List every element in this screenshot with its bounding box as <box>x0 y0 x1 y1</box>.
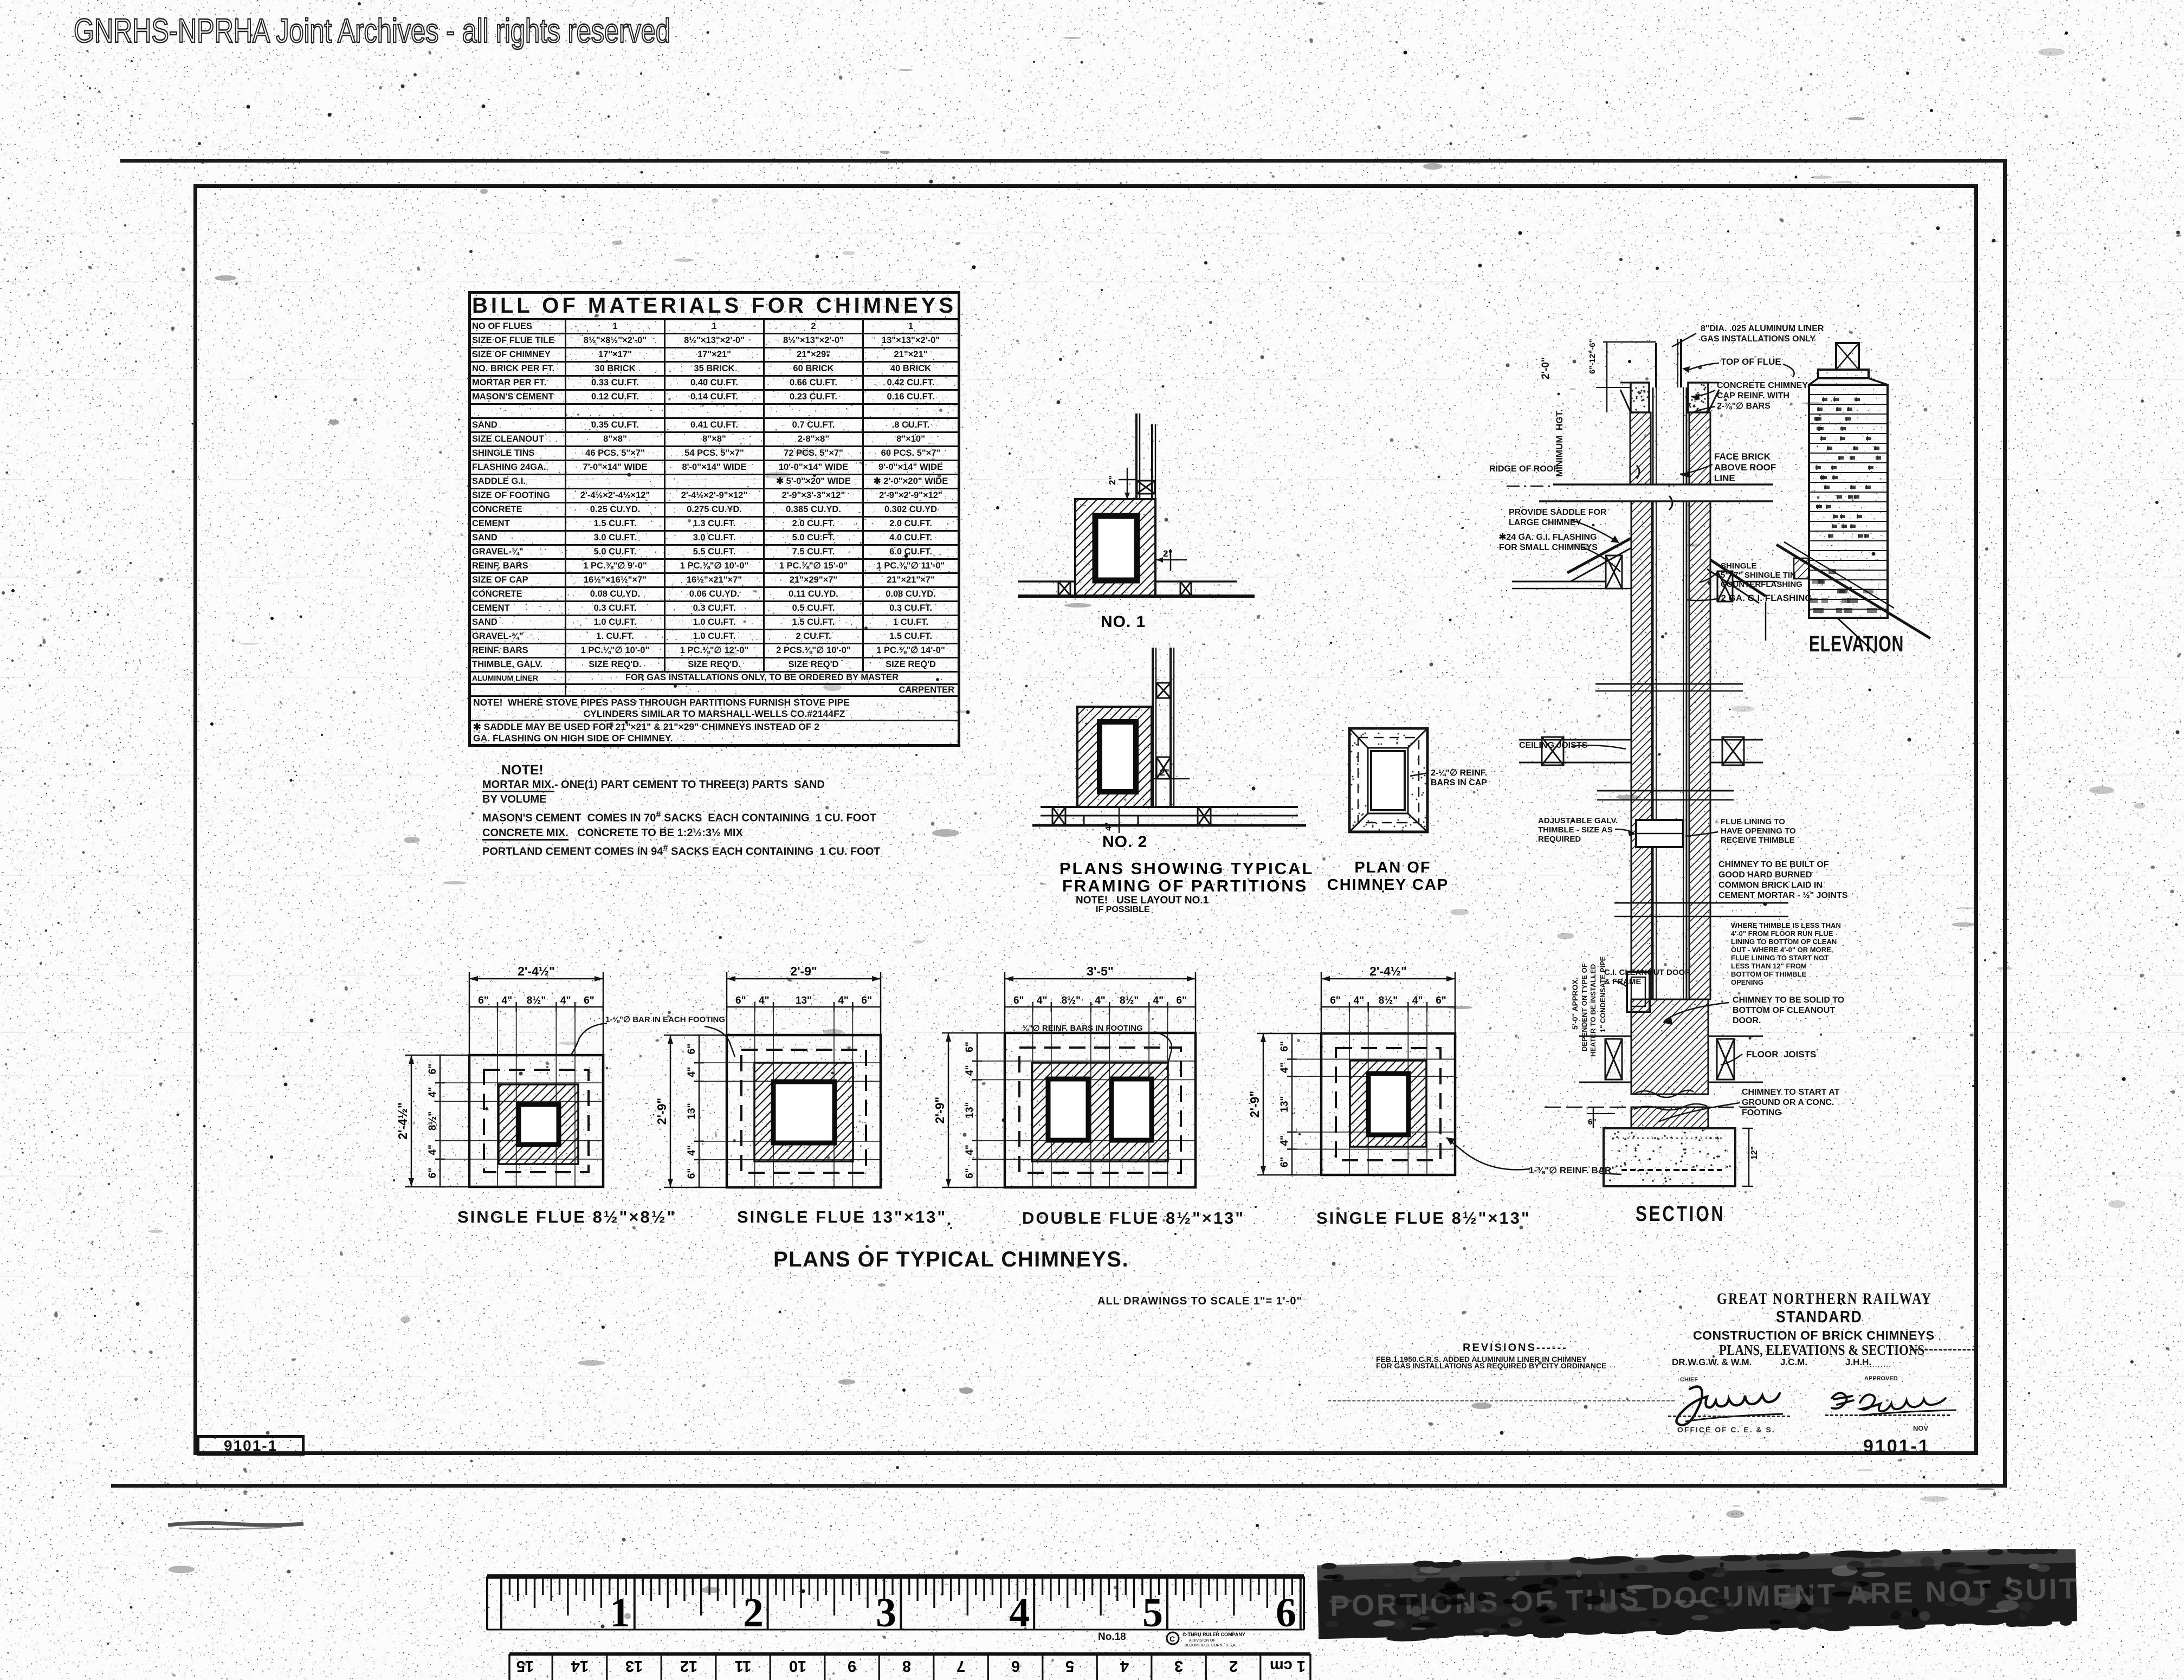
svg-text:4": 4" <box>1104 823 1113 831</box>
svg-text:A DIVISION OF: A DIVISION OF <box>1189 1639 1216 1643</box>
svg-text:4: 4 <box>1120 1657 1129 1675</box>
svg-text:4": 4" <box>1354 995 1365 1006</box>
svg-text:6": 6" <box>1176 995 1187 1006</box>
svg-text:9: 9 <box>848 1657 856 1675</box>
svg-text:2: 2 <box>743 1590 764 1636</box>
svg-text:13: 13 <box>625 1657 643 1675</box>
svg-text:4": 4" <box>838 995 849 1006</box>
svg-text:8½": 8½" <box>427 1112 438 1130</box>
svg-text:6": 6" <box>427 1064 438 1075</box>
svg-text:8: 8 <box>902 1657 911 1675</box>
svg-text:1 cm: 1 cm <box>1270 1657 1306 1675</box>
svg-text:2": 2" <box>1107 475 1117 485</box>
svg-text:4": 4" <box>1095 995 1106 1006</box>
svg-text:4": 4" <box>427 1145 438 1155</box>
svg-text:6": 6" <box>478 995 489 1006</box>
svg-text:4": 4" <box>1279 1062 1290 1073</box>
svg-text:8½": 8½" <box>1062 995 1081 1006</box>
svg-text:5: 5 <box>1065 1657 1074 1675</box>
svg-text:6": 6" <box>427 1168 438 1179</box>
svg-text:CHIMNEY CAP: CHIMNEY CAP <box>1327 876 1449 894</box>
svg-text:4": 4" <box>964 1065 975 1076</box>
svg-text:6": 6" <box>964 1168 975 1179</box>
svg-text:4": 4" <box>759 995 770 1006</box>
svg-text:8½": 8½" <box>1379 995 1398 1006</box>
svg-text:4": 4" <box>686 1145 697 1156</box>
svg-text:6: 6 <box>1011 1657 1020 1675</box>
svg-text:BARS IN CAP: BARS IN CAP <box>1431 778 1487 787</box>
svg-text:2": 2" <box>1160 767 1169 778</box>
svg-text:4": 4" <box>964 1145 975 1155</box>
svg-text:6": 6" <box>686 1168 697 1179</box>
svg-text:4": 4" <box>560 995 571 1006</box>
svg-text:15: 15 <box>516 1657 534 1675</box>
svg-text:6": 6" <box>1279 1156 1290 1167</box>
svg-text:3: 3 <box>876 1590 896 1636</box>
svg-text:14: 14 <box>571 1657 589 1675</box>
svg-text:6: 6 <box>1276 1590 1296 1636</box>
svg-text:2'-4½": 2'-4½" <box>396 1102 410 1140</box>
svg-text:3: 3 <box>1174 1657 1183 1675</box>
svg-text:13": 13" <box>686 1103 697 1119</box>
svg-text:PLAN OF: PLAN OF <box>1354 859 1431 876</box>
svg-text:NOTE! USE LAYOUT NO.1: NOTE! USE LAYOUT NO.1 <box>1076 895 1209 906</box>
svg-text:4: 4 <box>1009 1590 1030 1636</box>
svg-text:7: 7 <box>957 1657 965 1675</box>
svg-text:2'-9": 2'-9" <box>790 967 817 978</box>
svg-text:8½": 8½" <box>527 995 546 1006</box>
svg-text:6": 6" <box>584 995 595 1006</box>
svg-text:4": 4" <box>1279 1135 1290 1146</box>
svg-text:4": 4" <box>1153 995 1164 1006</box>
svg-text:4": 4" <box>427 1087 438 1097</box>
svg-text:6": 6" <box>861 995 872 1006</box>
svg-text:2'-4½": 2'-4½" <box>518 967 555 978</box>
svg-text:2: 2 <box>1229 1657 1238 1675</box>
svg-text:4": 4" <box>686 1067 697 1077</box>
svg-text:10: 10 <box>789 1657 806 1675</box>
svg-text:6": 6" <box>1013 995 1024 1006</box>
svg-text:8½": 8½" <box>1120 995 1139 1006</box>
svg-text:5: 5 <box>1142 1590 1163 1636</box>
svg-text:6": 6" <box>1279 1041 1290 1052</box>
svg-text:2'-9": 2'-9" <box>655 1098 669 1125</box>
svg-text:6": 6" <box>735 995 746 1006</box>
svg-text:C: C <box>1169 1634 1175 1643</box>
svg-text:3'-5": 3'-5" <box>1087 967 1114 978</box>
svg-text:NO. 2: NO. 2 <box>1102 833 1147 851</box>
svg-text:2'-9": 2'-9" <box>933 1097 947 1124</box>
svg-text:PLANS SHOWING TYPICAL: PLANS SHOWING TYPICAL <box>1059 859 1314 878</box>
svg-text:13": 13" <box>796 995 812 1006</box>
svg-text:11: 11 <box>735 1657 752 1675</box>
svg-text:NO. 1: NO. 1 <box>1101 613 1146 631</box>
svg-text:2-¼"∅ REINF.: 2-¼"∅ REINF. <box>1431 768 1487 778</box>
svg-text:BLOOMFIELD, CONN., U.S.A.: BLOOMFIELD, CONN., U.S.A. <box>1185 1644 1237 1647</box>
svg-text:4": 4" <box>1037 995 1048 1006</box>
svg-text:6": 6" <box>964 1042 975 1052</box>
svg-text:4": 4" <box>502 995 513 1006</box>
svg-text:FRAMING OF PARTITIONS: FRAMING OF PARTITIONS <box>1062 876 1308 895</box>
svg-text:IF POSSIBLE: IF POSSIBLE <box>1096 905 1150 913</box>
svg-text:4": 4" <box>1412 995 1423 1006</box>
svg-text:1: 1 <box>610 1590 630 1636</box>
svg-text:6": 6" <box>1330 995 1341 1006</box>
svg-text:C-THRU RULER COMPANY: C-THRU RULER COMPANY <box>1183 1632 1245 1637</box>
svg-text:2'-9": 2'-9" <box>1248 1091 1262 1118</box>
svg-text:2'-4½": 2'-4½" <box>1369 967 1407 978</box>
svg-text:13": 13" <box>1279 1096 1290 1112</box>
svg-text:12: 12 <box>680 1657 697 1675</box>
svg-text:13": 13" <box>964 1102 975 1118</box>
svg-text:2": 2" <box>1163 548 1173 559</box>
svg-text:6": 6" <box>1436 995 1446 1006</box>
